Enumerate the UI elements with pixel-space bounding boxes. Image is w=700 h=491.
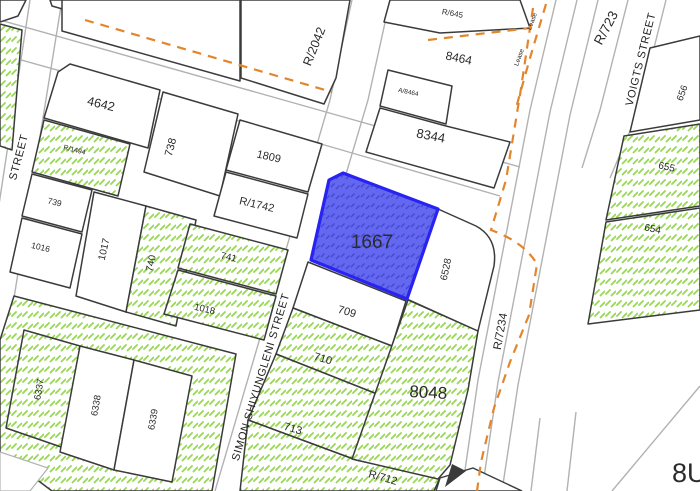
road-line: [502, 0, 598, 491]
parcel-label-partial: 8U: [672, 458, 700, 488]
cadastral-map[interactable]: STREET SIMON SHIYUNGLENI STREET VOIGTS S…: [0, 0, 700, 491]
parcel-corner-nw[interactable]: [0, 0, 26, 22]
map-canvas[interactable]: STREET SIMON SHIYUNGLENI STREET VOIGTS S…: [0, 0, 700, 491]
road-line: [567, 412, 576, 491]
lease-label: Lease: [526, 12, 539, 31]
road-ref-label: R/723: [591, 8, 621, 47]
parcel-west-green[interactable]: [0, 24, 22, 150]
parcel-label-8048: 8048: [409, 382, 448, 403]
parcel-r2042[interactable]: [241, 0, 350, 104]
parcel-label-1667-selected: 1667: [351, 232, 393, 253]
road-line: [531, 418, 540, 491]
road-line: [482, 0, 577, 491]
parcel-label-8464: 8464: [444, 48, 473, 67]
parcel-655[interactable]: [606, 124, 700, 220]
